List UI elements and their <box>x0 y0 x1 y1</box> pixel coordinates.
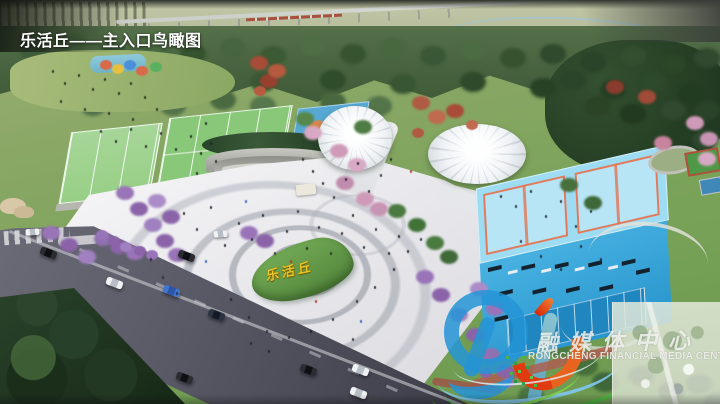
car <box>25 228 39 235</box>
outlined-court <box>483 175 568 255</box>
car <box>213 230 227 237</box>
park-aerial-rendering: 乐活丘 <box>0 0 720 404</box>
small-court <box>699 176 720 196</box>
bench-row <box>508 269 518 274</box>
water-playground <box>90 54 147 74</box>
bench-row <box>488 265 502 272</box>
watermark-english-text: RONGCHENG FINANCIAL MEDIA CENTRE <box>528 351 720 362</box>
page-title: 乐活丘——主入口鸟瞰图 <box>20 27 202 51</box>
tennis-court <box>684 147 720 177</box>
mound-sign-text: 乐活丘 <box>266 255 314 284</box>
canopy <box>14 206 34 218</box>
shell-canopy-pavilion <box>318 106 392 170</box>
canopy-structures <box>0 196 40 230</box>
corner-vignette <box>550 0 720 42</box>
small-pavilion <box>295 183 316 196</box>
shell-canopy-pavilion <box>428 124 526 184</box>
bottom-vignette <box>0 394 720 404</box>
